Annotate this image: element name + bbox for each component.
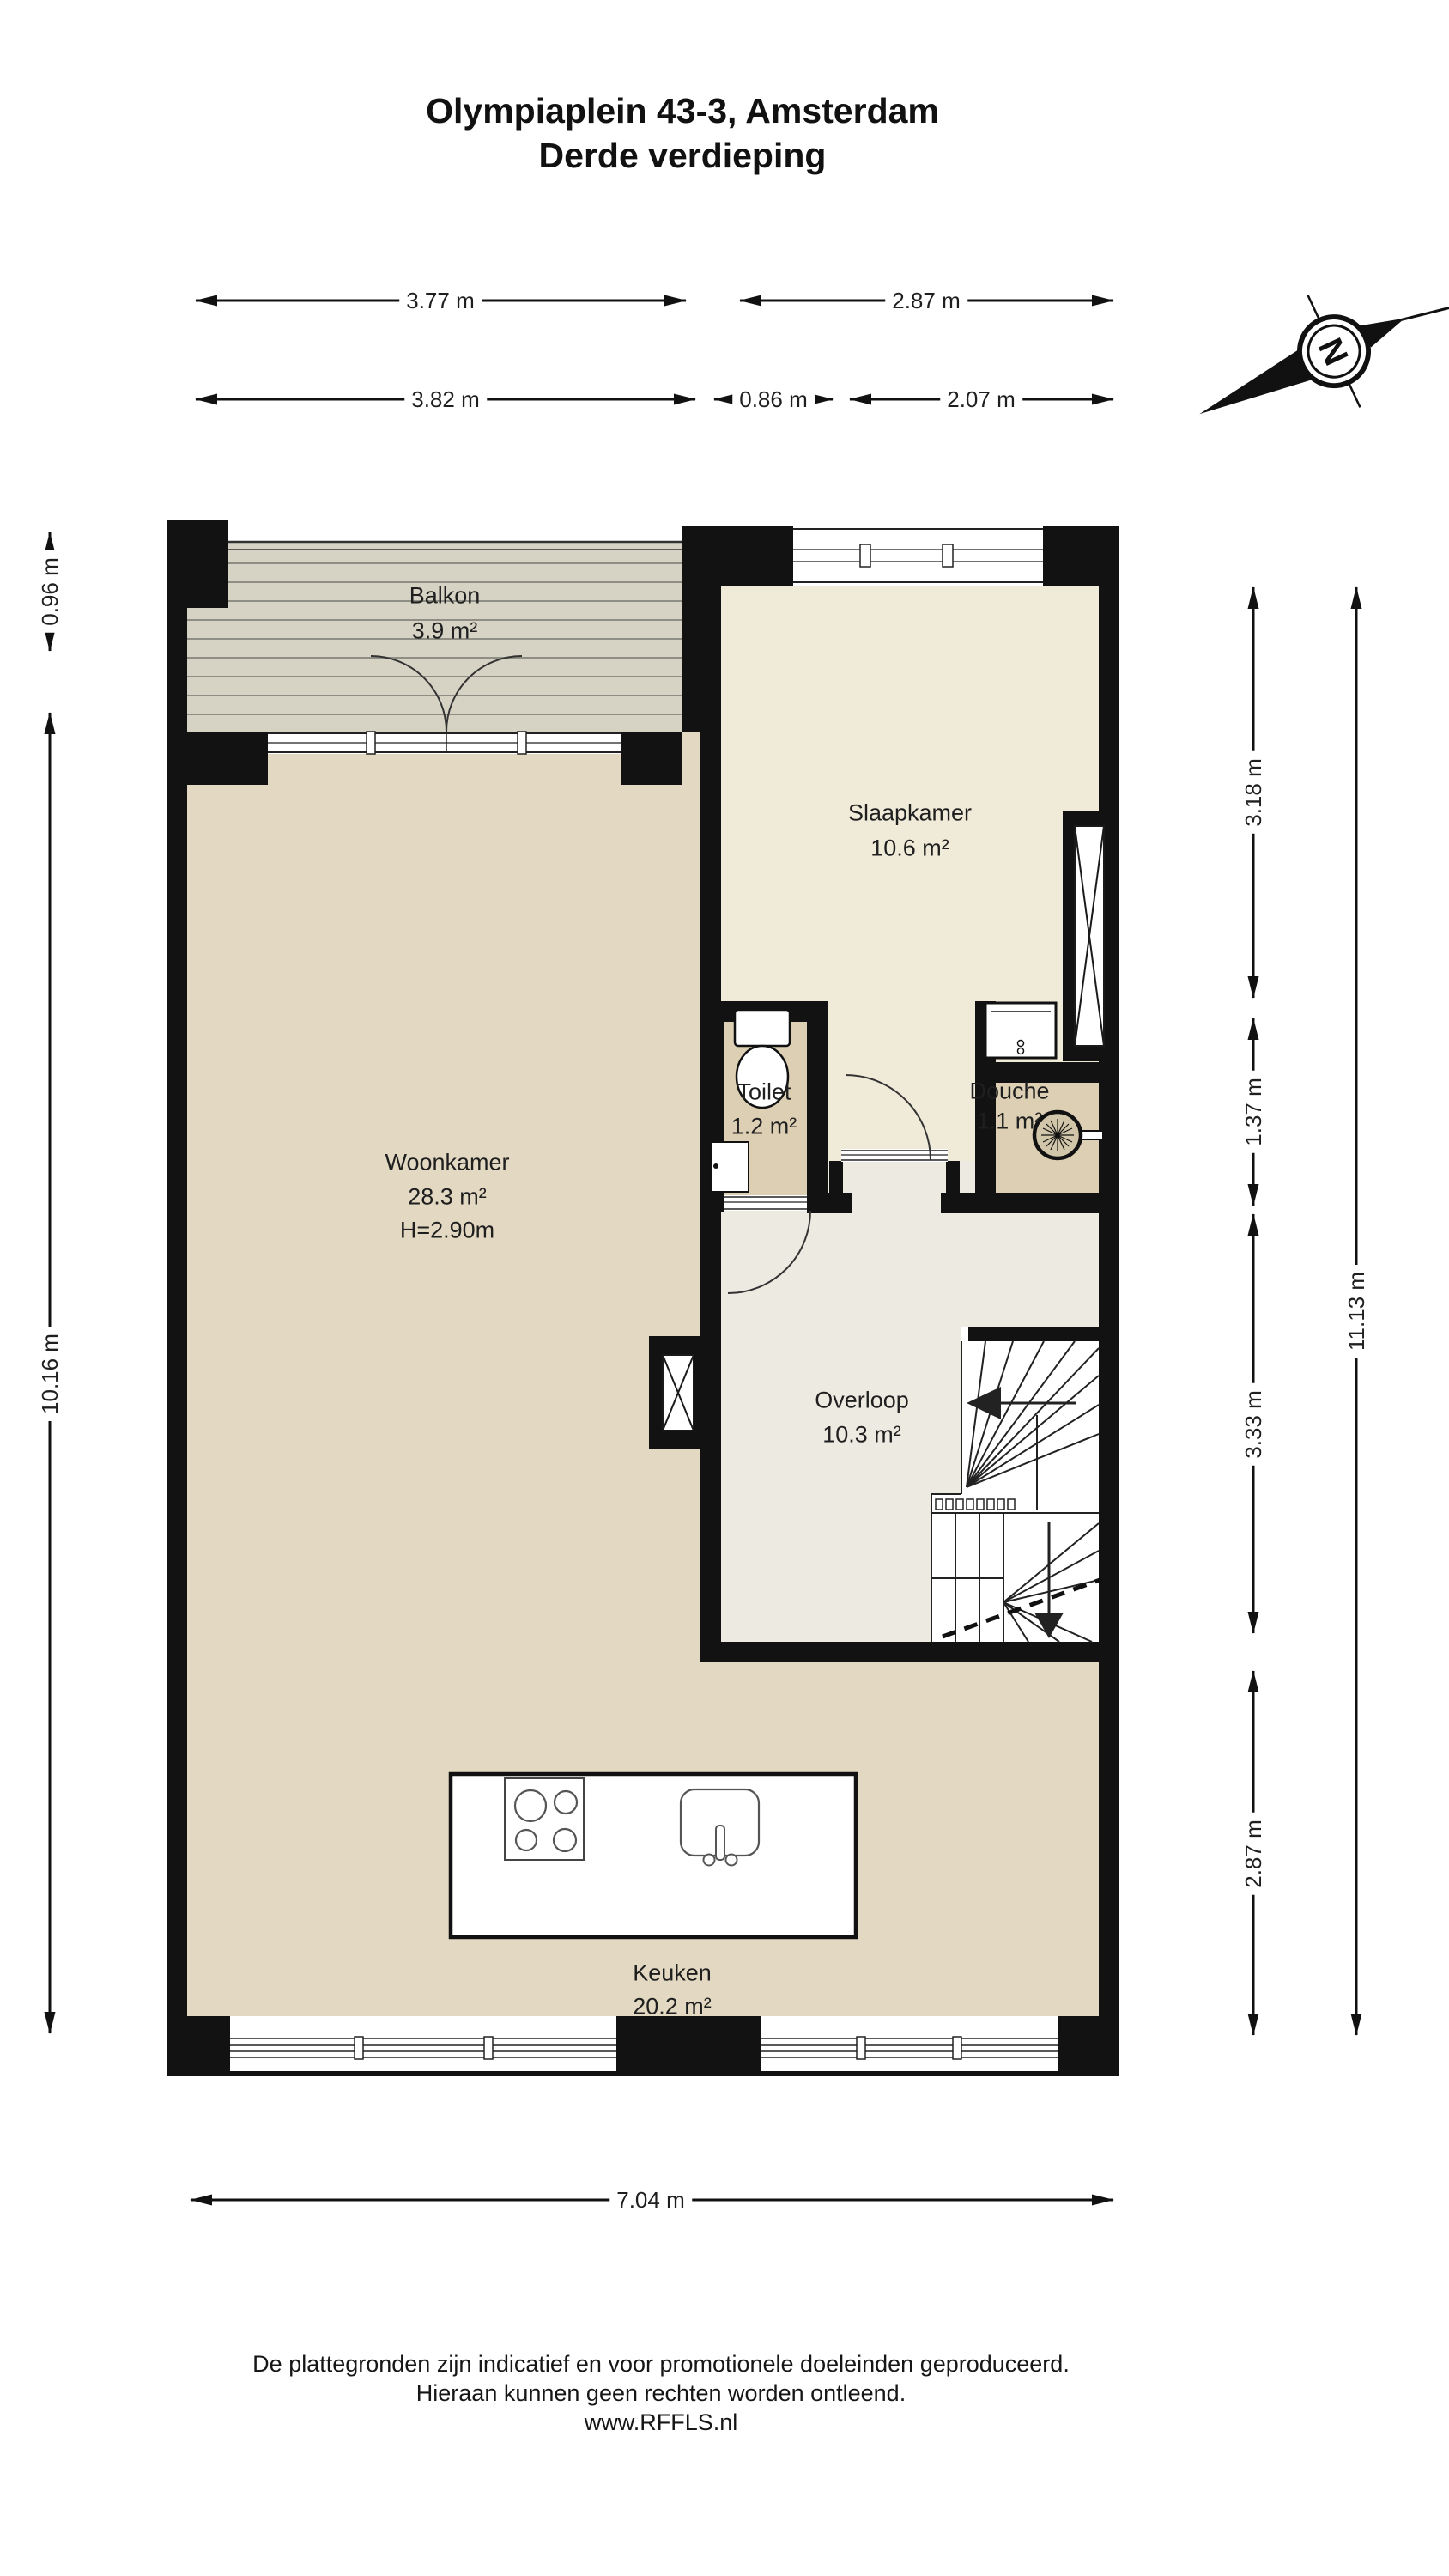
dim-right-seg-2: 1.37 m bbox=[1240, 1071, 1266, 1153]
hob-icon bbox=[505, 1778, 584, 1860]
dim-bottom-total: 7.04 m bbox=[609, 2187, 692, 2213]
kitchen-island bbox=[451, 1774, 856, 1937]
hall-floor bbox=[828, 1001, 975, 1161]
overloop-area: 10.3 m² bbox=[822, 1424, 901, 1447]
footer-disclaimer-2: Hieraan kunnen geen rechten worden ontle… bbox=[416, 2380, 906, 2407]
slaapkamer-area: 10.6 m² bbox=[870, 837, 949, 860]
floorplan-page: { "title": { "line1": "Olympiaplein 43-3… bbox=[0, 0, 1449, 2576]
dim-right-seg-3: 3.33 m bbox=[1240, 1383, 1266, 1466]
stair-upper-floor bbox=[961, 1327, 1099, 1494]
dim-right-seg-4: 2.87 m bbox=[1240, 1813, 1266, 1895]
dim-top-inner-left: 3.82 m bbox=[404, 386, 487, 412]
north-compass: N bbox=[1173, 241, 1449, 471]
footer-website: www.RFFLS.nl bbox=[585, 2409, 738, 2436]
keuken-label: Keuken bbox=[633, 1962, 712, 1985]
balkon-label: Balkon bbox=[409, 585, 481, 608]
toilet-area: 1.2 m² bbox=[731, 1115, 797, 1139]
floorplan-drawing: N bbox=[0, 0, 1449, 2576]
woonkamer-ceiling: H=2.90m bbox=[400, 1219, 494, 1242]
slaapkamer-label: Slaapkamer bbox=[848, 802, 972, 825]
dim-top-outer-right: 2.87 m bbox=[885, 288, 967, 313]
douche-label: Douche bbox=[969, 1080, 1049, 1103]
toilet-label: Toilet bbox=[737, 1081, 791, 1104]
toilet-sink-icon bbox=[711, 1142, 749, 1192]
overloop-label: Overloop bbox=[815, 1389, 909, 1413]
footer-disclaimer-1: De plattegronden zijn indicatief en voor… bbox=[252, 2351, 1070, 2378]
balkon-area: 3.9 m² bbox=[412, 620, 478, 643]
washing-machine-icon bbox=[985, 1003, 1056, 1058]
kitchen-sink-icon bbox=[681, 1789, 759, 1866]
page-title: Olympiaplein 43-3, Amsterdam bbox=[426, 91, 939, 131]
keuken-area: 20.2 m² bbox=[633, 1996, 712, 2019]
dim-top-inner-right: 2.07 m bbox=[940, 386, 1022, 412]
dim-top-outer-left: 3.77 m bbox=[399, 288, 482, 313]
woonkamer-area: 28.3 m² bbox=[408, 1186, 487, 1209]
douche-area: 1.1 m² bbox=[977, 1110, 1043, 1133]
dim-right-total: 11.13 m bbox=[1343, 1265, 1369, 1358]
slaapkamer-floor bbox=[721, 586, 1099, 1001]
dim-right-seg-1: 3.18 m bbox=[1240, 751, 1266, 834]
page-subtitle: Derde verdieping bbox=[539, 136, 827, 176]
dim-left-balcony: 0.96 m bbox=[37, 550, 63, 633]
dim-top-inner-mid: 0.86 m bbox=[732, 386, 815, 412]
woonkamer-label: Woonkamer bbox=[385, 1151, 509, 1175]
slaapkamer-window bbox=[793, 526, 1043, 586]
dim-left-total: 10.16 m bbox=[37, 1327, 63, 1421]
